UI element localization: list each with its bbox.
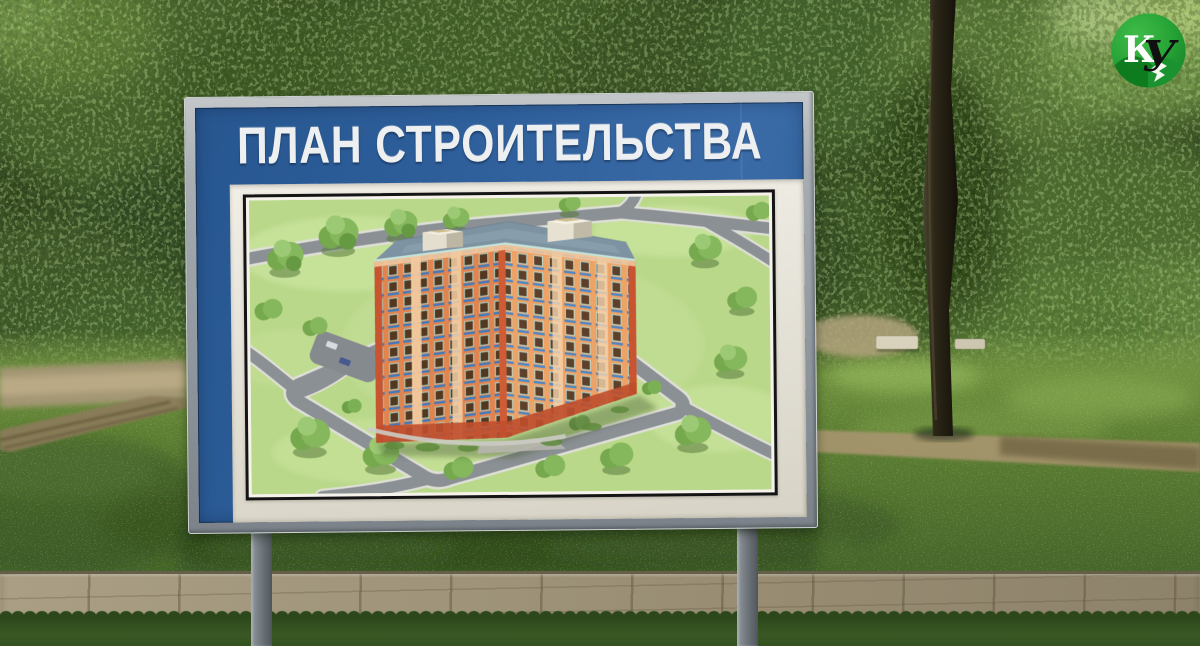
building-facade-left xyxy=(374,243,507,442)
billboard-title: ПЛАН СТРОИТЕЛЬСТВА xyxy=(195,102,804,185)
grass-fringe xyxy=(0,609,1200,618)
construction-plan-art xyxy=(249,195,772,494)
billboard-post-left xyxy=(251,524,272,646)
poster-mat xyxy=(230,179,807,522)
billboard-post-right xyxy=(737,524,758,646)
billboard-title-text: ПЛАН СТРОИТЕЛЬСТВА xyxy=(236,111,762,176)
scene-root: ПЛАН СТРОИТЕЛЬСТВА xyxy=(0,0,1200,646)
logo-badge: К У xyxy=(1110,12,1187,89)
foreground-grass xyxy=(0,617,1200,646)
plan-frame xyxy=(243,189,778,500)
billboard: ПЛАН СТРОИТЕЛЬСТВА xyxy=(184,91,818,534)
logo-letter-u: У xyxy=(1142,32,1179,81)
billboard-poster: ПЛАН СТРОИТЕЛЬСТВА xyxy=(195,102,807,523)
